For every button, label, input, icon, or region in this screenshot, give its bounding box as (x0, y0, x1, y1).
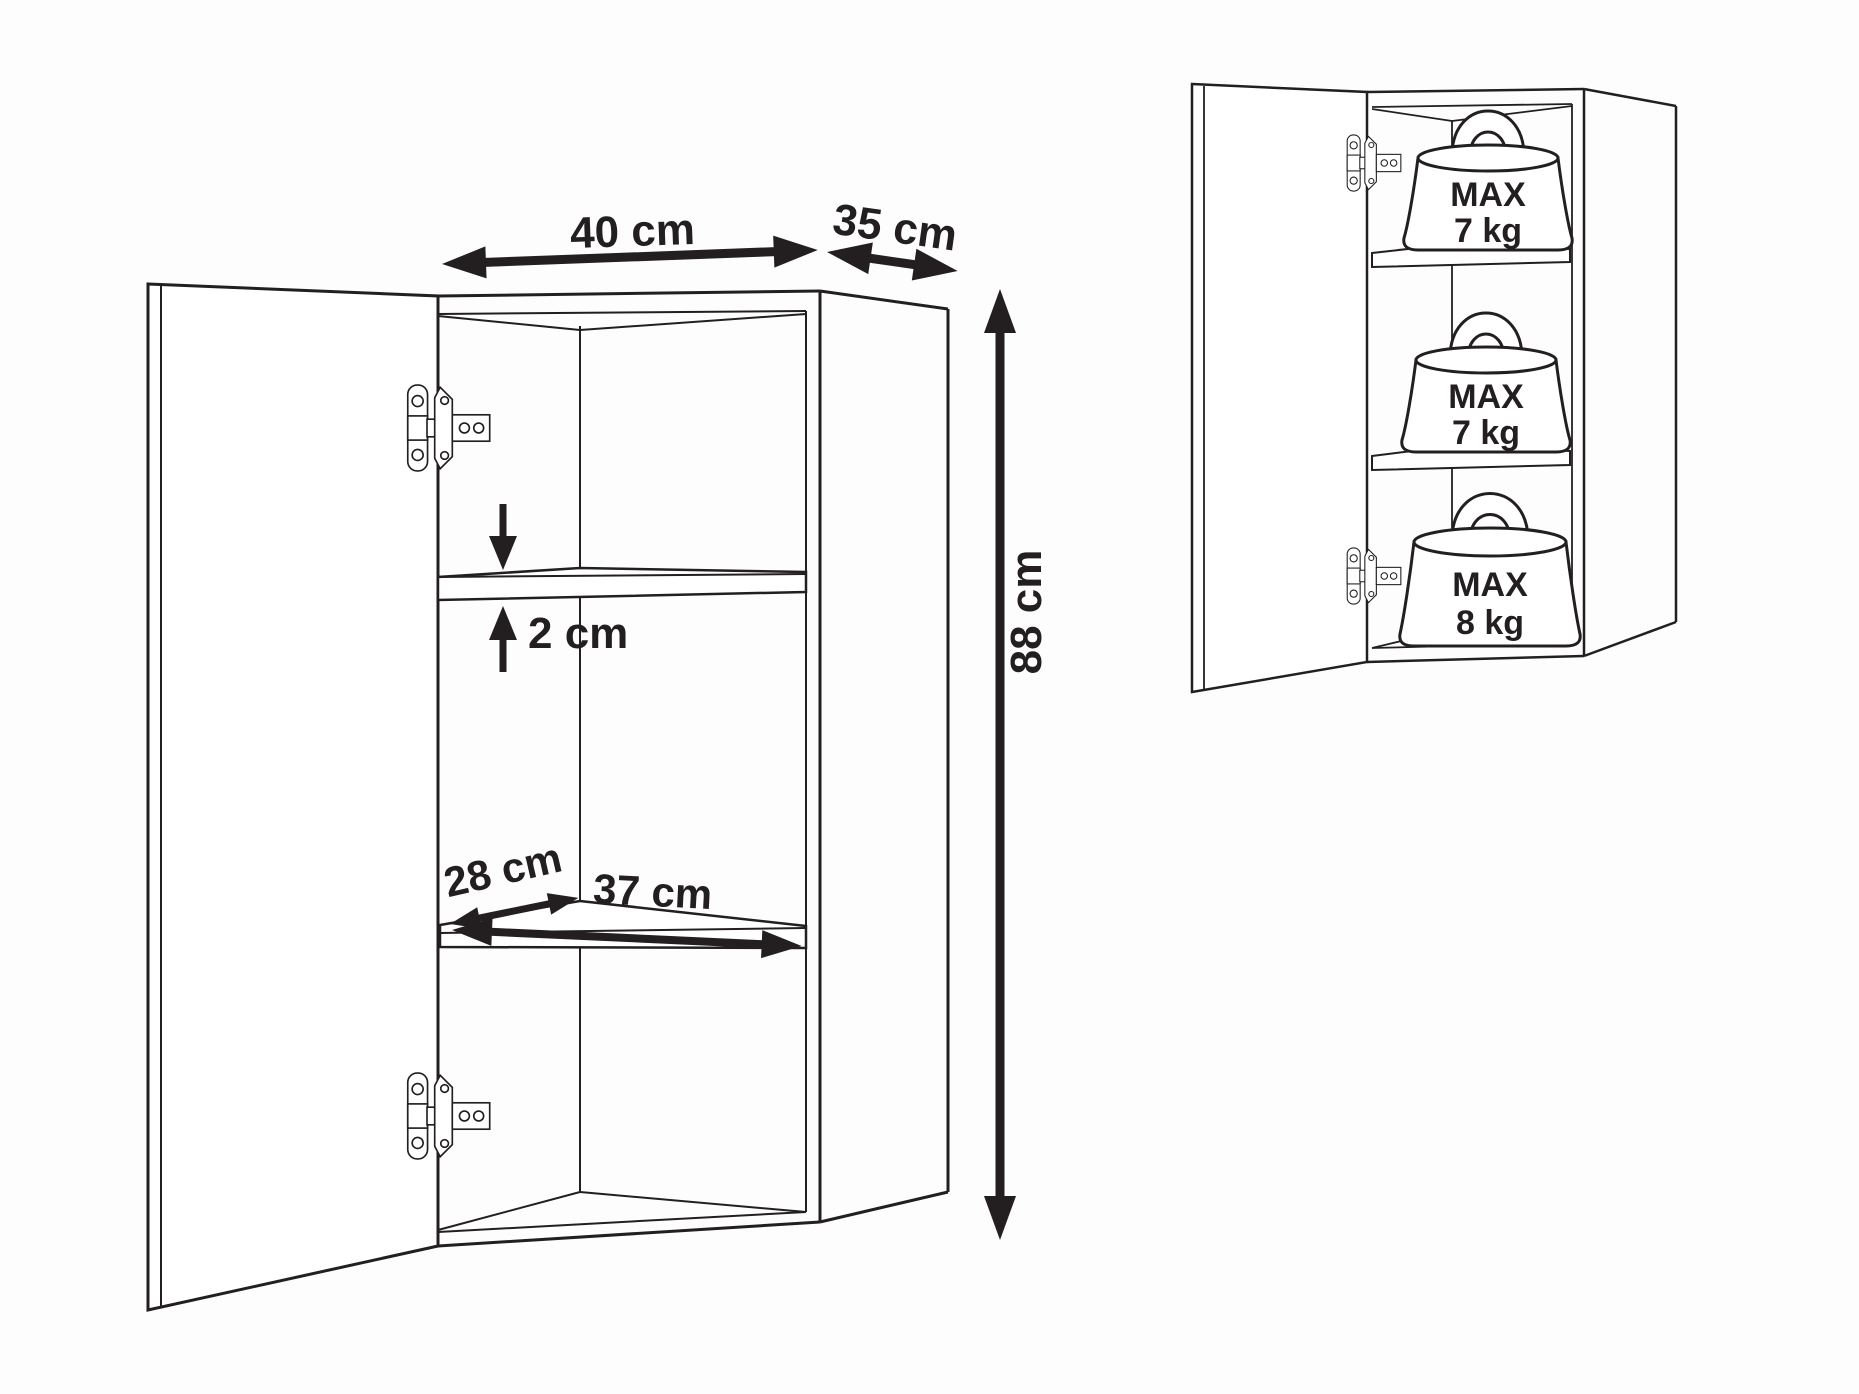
hinge-icon-right-top (1347, 135, 1401, 191)
cabinet-door (148, 284, 438, 1310)
dim-arrow-height (984, 289, 1016, 1240)
dim-shelf-depth-label: 28 cm (439, 834, 566, 907)
dim-height-label: 88 cm (1002, 550, 1051, 675)
weight-2-value-label: 7 kg (1452, 414, 1520, 452)
weight-bottom-shelf: MAX 8 kg (1400, 494, 1580, 647)
hinge-icon-left-top (408, 385, 490, 471)
dim-shelf-width-label: 37 cm (592, 865, 713, 918)
dimension-view: 40 cm 35 cm 88 cm 2 cm (148, 195, 1051, 1310)
weight-3-value-label: 8 kg (1456, 604, 1524, 642)
weight-3-max-label: MAX (1452, 566, 1528, 604)
dim-shelf-thickness-label: 2 cm (528, 609, 628, 658)
diagram-canvas: 40 cm 35 cm 88 cm 2 cm (0, 0, 1859, 1394)
weight-top-shelf: MAX 7 kg (1404, 111, 1572, 250)
shelf-upper (438, 568, 806, 600)
hinge-icon-right-bottom (1347, 548, 1401, 604)
load-cabinet-door (1192, 84, 1367, 692)
hinge-icon-left-bottom (408, 1073, 490, 1159)
cabinet-assembly-diagram: 40 cm 35 cm 88 cm 2 cm (0, 0, 1859, 1394)
weight-1-max-label: MAX (1450, 176, 1526, 214)
weight-middle-shelf: MAX 7 kg (1402, 313, 1570, 452)
weight-2-max-label: MAX (1448, 378, 1524, 416)
dim-width-label: 40 cm (569, 205, 695, 258)
load-capacity-view: MAX 7 kg MAX 7 kg MAX 8 kg (1192, 84, 1676, 692)
weight-1-value-label: 7 kg (1454, 212, 1522, 250)
dim-arrow-shelf-thickness-top (489, 504, 517, 570)
dim-arrow-shelf-thickness-bottom (489, 606, 517, 672)
cabinet-body (438, 291, 948, 1246)
